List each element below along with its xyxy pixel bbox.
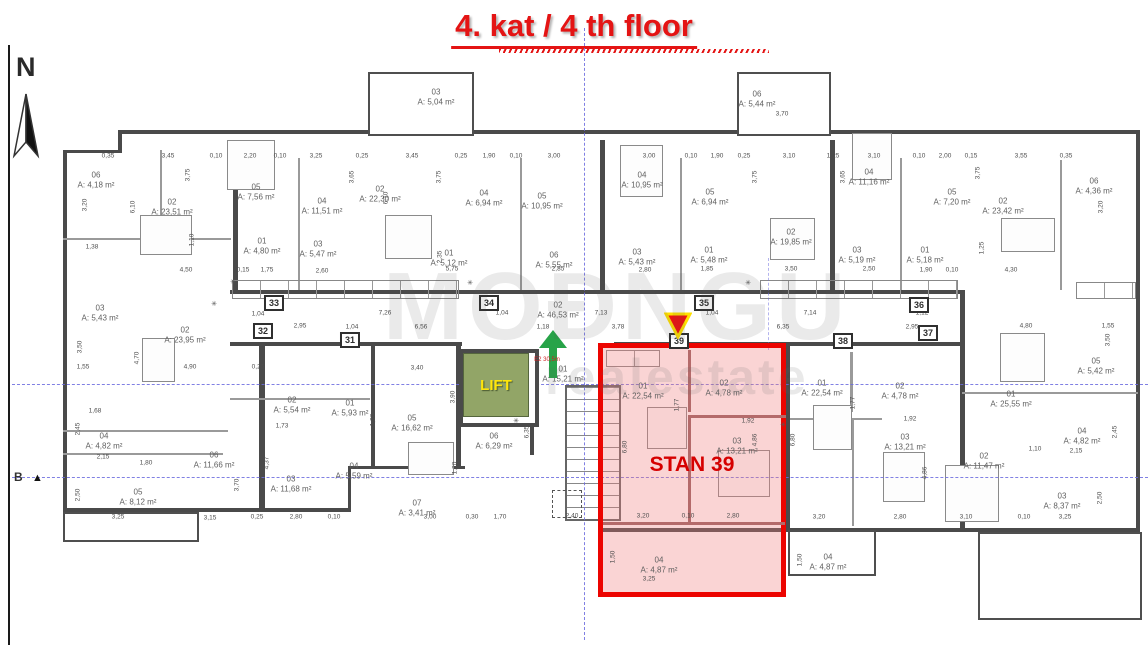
dimension-label: 3,78	[612, 324, 625, 331]
floor-plan-canvas: 4. kat / 4 th floor N MOĐNGU realestate …	[0, 0, 1148, 645]
lift-label: LIFT	[480, 377, 512, 394]
dimension-label: 2,80	[894, 514, 907, 521]
section-marker-icon: ▲	[32, 472, 43, 484]
furniture-symbol	[408, 442, 454, 475]
wall-segment	[1136, 130, 1140, 532]
dimension-label: 0,10	[274, 153, 287, 160]
dimension-label: 3,40	[411, 365, 424, 372]
dimension-label: 0,25	[738, 153, 751, 160]
room-label: 02A: 19,85 m²	[770, 227, 811, 246]
dimension-label: 3,50	[1105, 334, 1112, 347]
dimension-label: 4,86	[922, 467, 929, 480]
dimension-label: 3,10	[868, 153, 881, 160]
dimension-label: 3,75	[752, 171, 759, 184]
dimension-label: 3,20	[813, 514, 826, 521]
title-underline-squiggle	[499, 49, 769, 53]
dimension-label: 3,65	[349, 171, 356, 184]
dimension-label: 1,75	[261, 267, 274, 274]
dimension-label: 6,56	[415, 324, 428, 331]
dimension-label: 0,10	[685, 153, 698, 160]
dimension-label: 3,25	[112, 514, 125, 521]
dimension-label: 3,65	[840, 171, 847, 184]
dimension-label: 4,86	[752, 434, 759, 447]
axis-line-horizontal	[12, 384, 1148, 385]
room-label: 03A: 13,21 m²	[884, 432, 925, 451]
room-label: 01A: 5,18 m²	[907, 245, 944, 264]
dimension-label: 6,35	[777, 324, 790, 331]
stair-direction-arrow-icon	[539, 330, 567, 378]
dimension-label: 1,92	[742, 418, 755, 425]
fixture-symbol-icon: ✳	[745, 279, 751, 287]
dimension-label: 0,10	[682, 513, 695, 520]
furniture-symbol	[1000, 333, 1045, 382]
dimension-label: 2,50	[863, 266, 876, 273]
dimension-label: 6,10	[383, 192, 390, 205]
dimension-label: 2,85	[552, 266, 565, 273]
dimension-label: 2,80	[639, 267, 652, 274]
fixture-symbol-icon: ✳	[211, 300, 217, 308]
fixture-symbol-icon: ✳	[513, 417, 519, 425]
furniture-symbol	[1001, 218, 1055, 252]
room-label: 02A: 46,53 m²	[537, 300, 578, 319]
dimension-label: 1,25	[827, 153, 840, 160]
dimension-label: 0,15	[237, 267, 250, 274]
room-label: 04A: 4,82 m²	[1064, 426, 1101, 445]
dimension-label: 4,30	[1005, 267, 1018, 274]
dimension-label: 3,45	[162, 153, 175, 160]
apartment-number-box: 35	[694, 295, 714, 311]
dimension-label: 3,50	[785, 266, 798, 273]
room-label: 01A: 5,93 m²	[332, 398, 369, 417]
dimension-label: 1,04	[346, 324, 359, 331]
highlight-apartment-wall	[603, 522, 785, 525]
dimension-label: 3,00	[424, 514, 437, 521]
dimension-label: 6,10	[130, 201, 137, 214]
stair-elevation-note: E2 30,5m	[534, 357, 560, 363]
dimension-label: 3,45	[406, 153, 419, 160]
dimension-label: 5,75	[446, 266, 459, 273]
dimension-label: 0,25	[252, 364, 265, 371]
fixture-symbol-icon: ✳	[230, 278, 236, 286]
room-label: 03A: 5,19 m²	[839, 245, 876, 264]
dimension-label: 3,70	[234, 479, 241, 492]
dimension-label: 1,90	[920, 267, 933, 274]
room-label: 06A: 11,66 m²	[194, 450, 235, 469]
highlight-apartment-wall	[688, 350, 691, 412]
dimension-label: 0,25	[251, 514, 264, 521]
dimension-label: 3,50	[77, 341, 84, 354]
dimension-label: 1,55	[77, 364, 90, 371]
room-label: 02A: 23,42 m²	[982, 196, 1023, 215]
dimension-label: 3,25	[1059, 514, 1072, 521]
room-label: 01A: 4,80 m²	[244, 236, 281, 255]
dimension-label: 3,75	[185, 169, 192, 182]
dimension-label: 2,00	[939, 153, 952, 160]
room-label: 03A: 8,37 m²	[1044, 491, 1081, 510]
partition-wall	[852, 418, 854, 526]
dimension-label: 0,25	[356, 153, 369, 160]
apartment-number-box: 31	[340, 332, 360, 348]
dimension-label: 6,80	[790, 434, 797, 447]
dimension-label: 1,77	[674, 399, 681, 412]
section-marker-label: B	[14, 470, 23, 484]
dimension-label: 1,50	[610, 551, 617, 564]
dimension-label: 1,50	[797, 554, 804, 567]
dimension-label: 1,80	[140, 460, 153, 467]
dimension-label: 0,35	[102, 153, 115, 160]
partition-wall	[298, 158, 300, 290]
furniture-symbol	[813, 405, 852, 450]
dimension-label: 4,70	[134, 352, 141, 365]
dimension-label: 0,30	[466, 514, 479, 521]
room-label: 05A: 10,95 m²	[521, 191, 562, 210]
wall-segment	[371, 345, 375, 468]
wall-segment	[600, 140, 605, 292]
dimension-label: 0,10	[210, 153, 223, 160]
dimension-label: 2,95	[294, 323, 307, 330]
apartment-number-box: 36	[909, 297, 929, 313]
dimension-label: 1,20	[452, 462, 459, 475]
dimension-label: 7,13	[595, 310, 608, 317]
lift-cabin: LIFT	[463, 353, 529, 417]
dimension-label: 3,70	[776, 111, 789, 118]
balcony-outline	[978, 532, 1142, 620]
dimension-label: 2,95	[906, 324, 919, 331]
apartment-39-label: STAN 39	[650, 453, 735, 477]
dimension-label: 4,90	[184, 364, 197, 371]
room-label: 02A: 4,78 m²	[706, 378, 743, 397]
dimension-label: 3,10	[783, 153, 796, 160]
page-title: 4. kat / 4 th floor	[451, 8, 697, 49]
kitchen-counter	[1076, 282, 1136, 299]
dimension-label: 0,25	[455, 153, 468, 160]
room-label: 04A: 11,16 m²	[849, 167, 890, 186]
dimension-label: 3,25	[643, 576, 656, 583]
dimension-label: 0,15	[965, 153, 978, 160]
room-label: 03A: 5,43 m²	[619, 247, 656, 266]
dimension-label: 2,35	[437, 251, 444, 264]
dimension-label: 0,10	[913, 153, 926, 160]
room-label: 06A: 4,18 m²	[78, 170, 115, 189]
room-label: 02A: 11,47 m²	[964, 451, 1005, 470]
room-label: 05A: 8,12 m²	[120, 487, 157, 506]
dimension-label: 4,50	[180, 267, 193, 274]
axis-line-horizontal	[12, 477, 1148, 478]
room-label: 04A: 6,94 m²	[466, 188, 503, 207]
dimension-label: 1,55	[1102, 323, 1115, 330]
dimension-label: 2,80	[290, 514, 303, 521]
wall-segment	[63, 150, 67, 512]
room-label: 01A: 5,48 m²	[691, 245, 728, 264]
room-label: 04A: 10,95 m²	[621, 170, 662, 189]
dimension-label: 0,10	[1018, 514, 1031, 521]
partition-wall	[962, 392, 1138, 394]
dimension-label: 1,73	[276, 423, 289, 430]
partition-wall	[900, 158, 902, 290]
room-label: 02A: 5,54 m²	[274, 395, 311, 414]
furniture-symbol	[140, 215, 192, 255]
dimension-label: 4,37	[264, 457, 271, 470]
room-label: 02A: 22,30 m²	[359, 184, 400, 203]
room-label: 05A: 7,20 m²	[934, 187, 971, 206]
dimension-label: 3,55	[1015, 153, 1028, 160]
room-label: 06A: 6,29 m²	[476, 431, 513, 450]
entrance-marker-icon	[664, 312, 692, 339]
dimension-label: 7,26	[379, 310, 392, 317]
north-arrow-icon	[10, 92, 42, 162]
balcony-outline	[63, 512, 199, 542]
dimension-label: 1,25	[979, 242, 986, 255]
partition-wall	[680, 158, 682, 290]
dimension-label: 3,90	[450, 391, 457, 404]
dimension-label: 2,45	[75, 423, 82, 436]
room-label: 04A: 11,51 m²	[302, 196, 343, 215]
room-label: 05A: 6,94 m²	[692, 187, 729, 206]
dimension-label: 3,00	[548, 153, 561, 160]
room-label: 06A: 5,44 m²	[739, 89, 776, 108]
room-label: 05A: 16,62 m²	[391, 413, 432, 432]
north-label: N	[16, 52, 36, 83]
dimension-label: 4,80	[1020, 323, 1033, 330]
dimension-label: 1,04	[252, 311, 265, 318]
dimension-label: 1,70	[494, 514, 507, 521]
dimension-label: 7,14	[804, 310, 817, 317]
dimension-label: 1,77	[850, 397, 857, 410]
room-label: 01A: 22,54 m²	[801, 378, 842, 397]
dimension-label: 2,80	[727, 513, 740, 520]
dimension-label: 0,35	[1060, 153, 1073, 160]
fixture-symbol-icon: ✳	[780, 421, 786, 429]
room-label: 04A: 4,87 m²	[641, 555, 678, 574]
dimension-label: 2,60	[316, 268, 329, 275]
room-label: 01A: 22,54 m²	[622, 381, 663, 400]
dimension-label: 2,20	[244, 153, 257, 160]
room-label: 02A: 23,51 m²	[151, 197, 192, 216]
apartment-number-box: 32	[253, 323, 273, 339]
axis-line-vertical	[768, 258, 769, 350]
dimension-label: 1,20	[370, 414, 377, 427]
partition-wall	[1060, 160, 1062, 290]
room-label: 03A: 11,68 m²	[271, 474, 312, 493]
fixture-symbol-icon: ✳	[467, 279, 473, 287]
apartment-number-box: 34	[479, 295, 499, 311]
dimension-label: 3,10	[960, 514, 973, 521]
furniture-symbol	[385, 215, 432, 259]
highlight-apartment-wall	[688, 415, 786, 418]
room-label: 01A: 25,55 m²	[990, 389, 1031, 408]
room-label: 04A: 4,87 m²	[810, 552, 847, 571]
dimension-label: 1,85	[701, 266, 714, 273]
room-label: 02A: 23,95 m²	[164, 325, 205, 344]
dimension-label: 6,35	[524, 426, 531, 439]
dimension-label: 3,15	[204, 515, 217, 522]
dimension-label: 2,15	[1070, 448, 1083, 455]
room-label: 03A: 5,04 m²	[418, 87, 455, 106]
dimension-label: 1,38	[86, 244, 99, 251]
wall-segment	[118, 130, 1140, 134]
dimension-label: 3,20	[82, 199, 89, 212]
apartment-number-box: 38	[833, 333, 853, 349]
dimension-label: 3,00	[643, 153, 656, 160]
dimension-label: 2,15	[97, 454, 110, 461]
dimension-label: 1,90	[483, 153, 496, 160]
dimension-label: 3,75	[975, 167, 982, 180]
dimension-label: 1,92	[904, 416, 917, 423]
dimension-label: 3,20	[1098, 201, 1105, 214]
partition-wall	[520, 158, 522, 290]
dimension-label: 2,50	[75, 489, 82, 502]
dimension-label: 3,20	[637, 513, 650, 520]
room-label: 05A: 7,56 m²	[238, 182, 275, 201]
room-label: 03A: 5,47 m²	[300, 239, 337, 258]
room-label: 06A: 4,36 m²	[1076, 176, 1113, 195]
dimension-label: 6,80	[622, 441, 629, 454]
axis-line-vertical	[584, 28, 585, 640]
room-label: 04A: 4,82 m²	[86, 431, 123, 450]
wall-segment	[830, 140, 835, 292]
dimension-label: 1,10	[1029, 446, 1042, 453]
dimension-label: 1,68	[89, 408, 102, 415]
dimension-label: 3,75	[436, 171, 443, 184]
dimension-label: 0,10	[946, 267, 959, 274]
dimension-label: 3,25	[310, 153, 323, 160]
room-label: 03A: 5,43 m²	[82, 303, 119, 322]
dimension-label: 2,40	[566, 513, 579, 520]
dimension-label: 2,50	[1097, 492, 1104, 505]
dimension-label: 1,90	[711, 153, 724, 160]
apartment-number-box: 37	[918, 325, 938, 341]
dimension-label: 2,45	[1112, 426, 1119, 439]
dimension-label: 0,10	[328, 514, 341, 521]
dimension-label: 0,10	[510, 153, 523, 160]
apartment-number-box: 33	[264, 295, 284, 311]
room-label: 05A: 5,42 m²	[1078, 356, 1115, 375]
wall-segment	[118, 130, 122, 153]
furniture-symbol	[142, 338, 175, 382]
room-label: 04A: 5,59 m²	[336, 461, 373, 480]
room-label: 02A: 4,78 m²	[882, 381, 919, 400]
dimension-label: 1,10	[189, 234, 196, 247]
